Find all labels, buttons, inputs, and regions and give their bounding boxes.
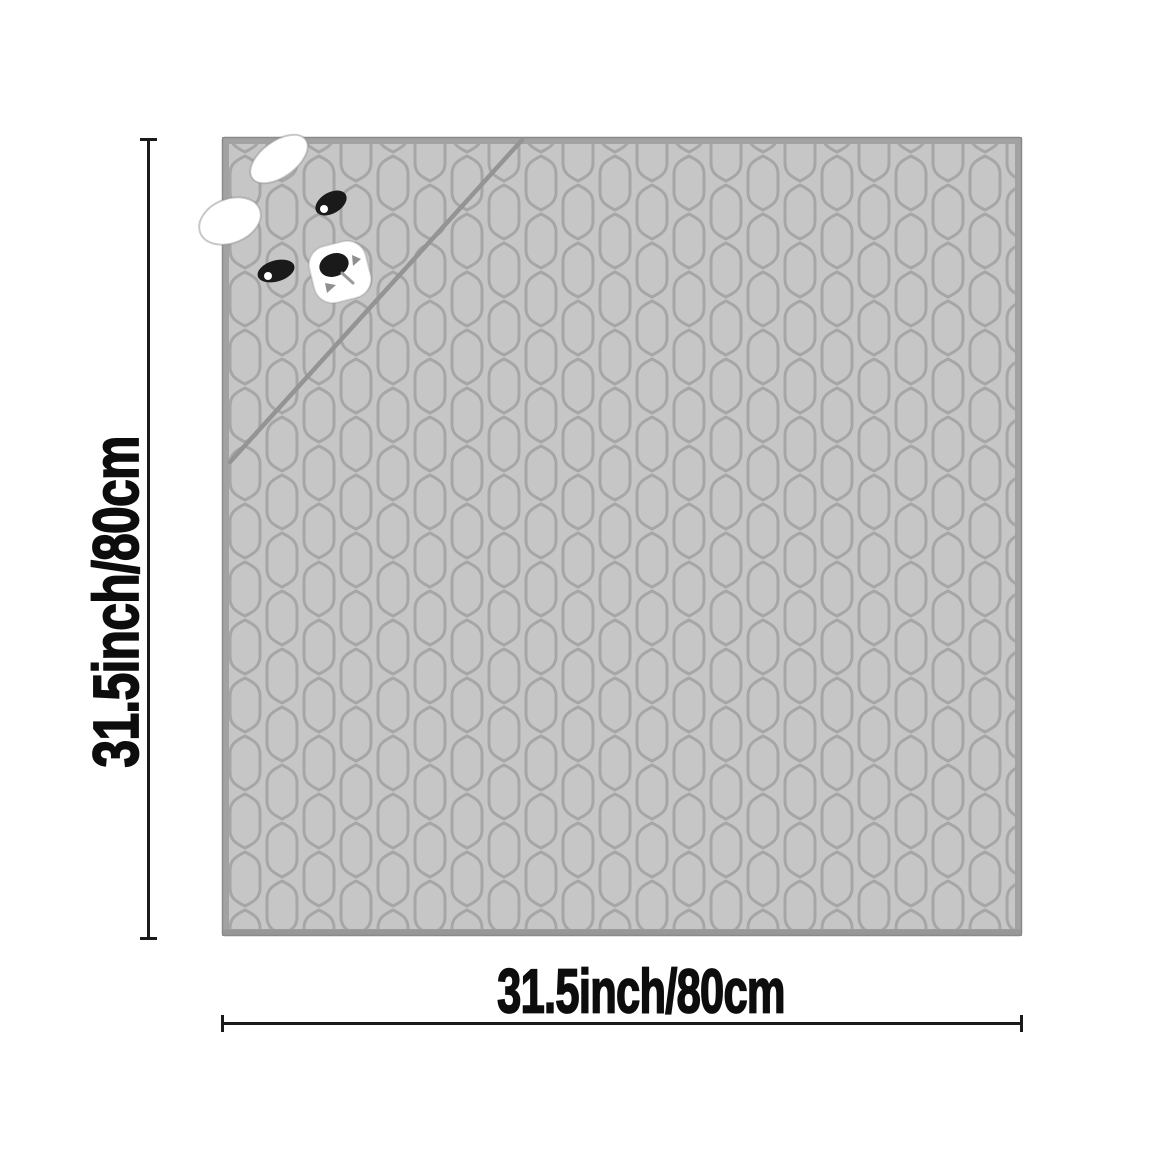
height-dimension-label: 31.5inch/80cm: [79, 436, 153, 767]
width-dimension-label: 31.5inch/80cm: [497, 957, 785, 1028]
mat-graphic: [190, 125, 1030, 945]
dog-eye-right-highlight: [320, 205, 328, 213]
product-dimension-diagram: 31.5inch/80cm 31.5inch/80cm: [0, 0, 1152, 1152]
dog-eye-left-highlight: [264, 272, 272, 280]
